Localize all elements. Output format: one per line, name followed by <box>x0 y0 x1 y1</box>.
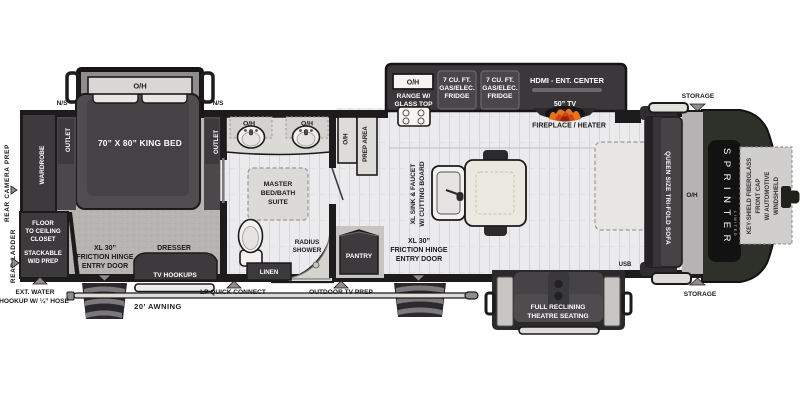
svg-text:HOOKUP W/ ¼” HOSE: HOOKUP W/ ¼” HOSE <box>0 297 70 305</box>
svg-text:FRIDGE: FRIDGE <box>445 93 471 100</box>
svg-text:STORAGE: STORAGE <box>682 93 715 100</box>
svg-text:REAR CAMERA PREP: REAR CAMERA PREP <box>4 144 11 222</box>
svg-text:WINDSHIELD: WINDSHIELD <box>774 176 780 215</box>
svg-text:TO CEILING: TO CEILING <box>25 228 60 235</box>
svg-text:FULL RECLINING: FULL RECLINING <box>531 304 586 311</box>
svg-text:FIREPLACE / HEATER: FIREPLACE / HEATER <box>532 123 606 130</box>
svg-text:GAS/ELEC.: GAS/ELEC. <box>439 85 475 92</box>
svg-text:70” X 80” KING BED: 70” X 80” KING BED <box>98 138 182 148</box>
svg-text:MASTER: MASTER <box>264 181 293 188</box>
svg-text:FRICTION HINGE: FRICTION HINGE <box>76 254 133 261</box>
svg-text:SPRINTER: SPRINTER <box>721 148 732 248</box>
svg-text:LINEN: LINEN <box>260 269 279 276</box>
svg-text:PREP AREA: PREP AREA <box>362 126 369 162</box>
svg-text:7 CU. FT.: 7 CU. FT. <box>486 77 514 84</box>
svg-text:QUEEN SIZE TRI-FOLD SOFA: QUEEN SIZE TRI-FOLD SOFA <box>664 151 671 245</box>
svg-text:TV HOOKUPS: TV HOOKUPS <box>153 272 197 279</box>
svg-text:OUTLET: OUTLET <box>66 128 72 152</box>
svg-text:RANGE W/: RANGE W/ <box>397 93 431 100</box>
svg-text:XL SINK & FAUCET: XL SINK & FAUCET <box>410 164 417 225</box>
svg-text:PANTRY: PANTRY <box>346 253 373 260</box>
svg-text:FRIDGE: FRIDGE <box>488 93 514 100</box>
svg-text:FLOOR: FLOOR <box>32 220 54 227</box>
svg-text:LP QUICK CONNECT: LP QUICK CONNECT <box>200 289 266 296</box>
svg-text:STACKABLE: STACKABLE <box>24 250 62 257</box>
svg-text:EXT. WATER: EXT. WATER <box>15 289 54 296</box>
svg-text:XL 30”: XL 30” <box>94 245 116 252</box>
svg-text:SHOWER: SHOWER <box>293 247 322 254</box>
svg-text:O/H: O/H <box>686 192 698 199</box>
svg-text:FRONT CAP: FRONT CAP <box>756 179 762 214</box>
svg-text:DRESSER: DRESSER <box>157 245 191 252</box>
svg-text:SUITE: SUITE <box>268 199 288 206</box>
svg-text:20’ AWNING: 20’ AWNING <box>134 302 182 311</box>
svg-text:XL 30”: XL 30” <box>408 238 430 245</box>
svg-text:WARDROBE: WARDROBE <box>39 145 46 184</box>
svg-text:CLOSET: CLOSET <box>30 236 55 243</box>
svg-text:ENTRY DOOR: ENTRY DOOR <box>82 263 128 270</box>
svg-text:ENTRY DOOR: ENTRY DOOR <box>396 256 442 263</box>
svg-text:W/D PREP: W/D PREP <box>28 258 59 265</box>
svg-text:O/H: O/H <box>343 133 350 145</box>
svg-text:OUTLET: OUTLET <box>214 130 220 154</box>
svg-text:W/ AUTOMOTIVE: W/ AUTOMOTIVE <box>765 172 771 221</box>
svg-text:REAR LADDER: REAR LADDER <box>10 229 17 283</box>
svg-text:BED/BATH: BED/BATH <box>261 190 296 197</box>
svg-text:HDMI - ENT. CENTER: HDMI - ENT. CENTER <box>530 76 605 85</box>
svg-text:N/S: N/S <box>57 100 69 107</box>
svg-text:7 CU. FT.: 7 CU. FT. <box>443 77 471 84</box>
svg-text:N/S: N/S <box>213 100 225 107</box>
svg-text:STORAGE: STORAGE <box>684 291 717 298</box>
svg-text:FRICTION HINGE: FRICTION HINGE <box>390 247 447 254</box>
svg-text:GAS/ELEC.: GAS/ELEC. <box>482 85 518 92</box>
svg-text:KEY-SHIELD FIBERGLASS: KEY-SHIELD FIBERGLASS <box>747 158 753 234</box>
svg-text:RADIUS: RADIUS <box>295 239 320 246</box>
svg-text:O/H: O/H <box>407 80 419 87</box>
svg-text:THEATRE SEATING: THEATRE SEATING <box>527 313 588 320</box>
svg-text:LIMITED: LIMITED <box>733 211 738 237</box>
svg-text:OUTDOOR TV PREP: OUTDOOR TV PREP <box>309 289 373 296</box>
svg-text:O/H: O/H <box>133 82 146 91</box>
svg-text:W/ CUTTING BOARD: W/ CUTTING BOARD <box>419 161 426 226</box>
svg-text:USB: USB <box>619 262 632 268</box>
